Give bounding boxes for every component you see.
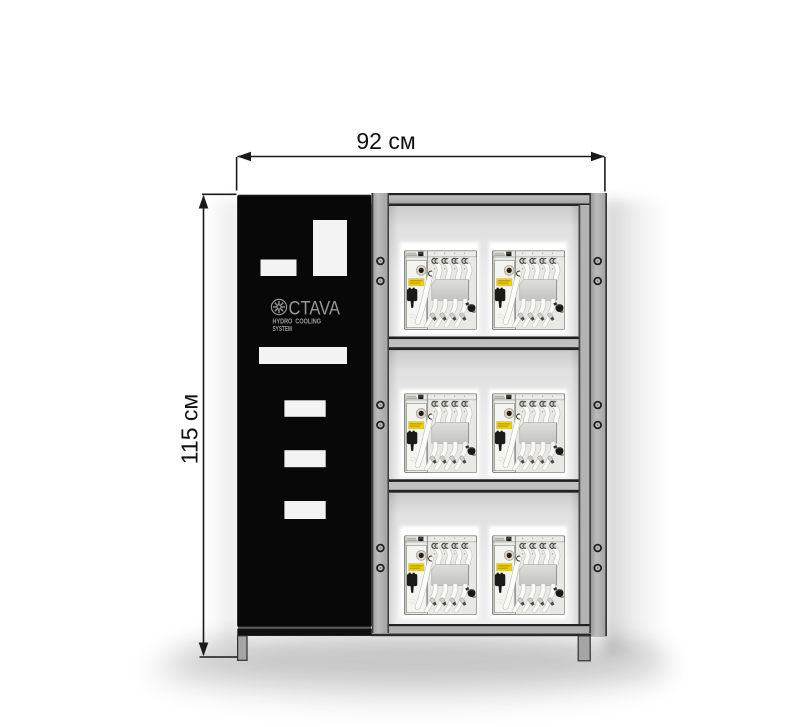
svg-text:115 см: 115 см (177, 394, 203, 464)
svg-text:92 см: 92 см (356, 128, 415, 154)
svg-text:SYSTEM: SYSTEM (273, 324, 293, 333)
